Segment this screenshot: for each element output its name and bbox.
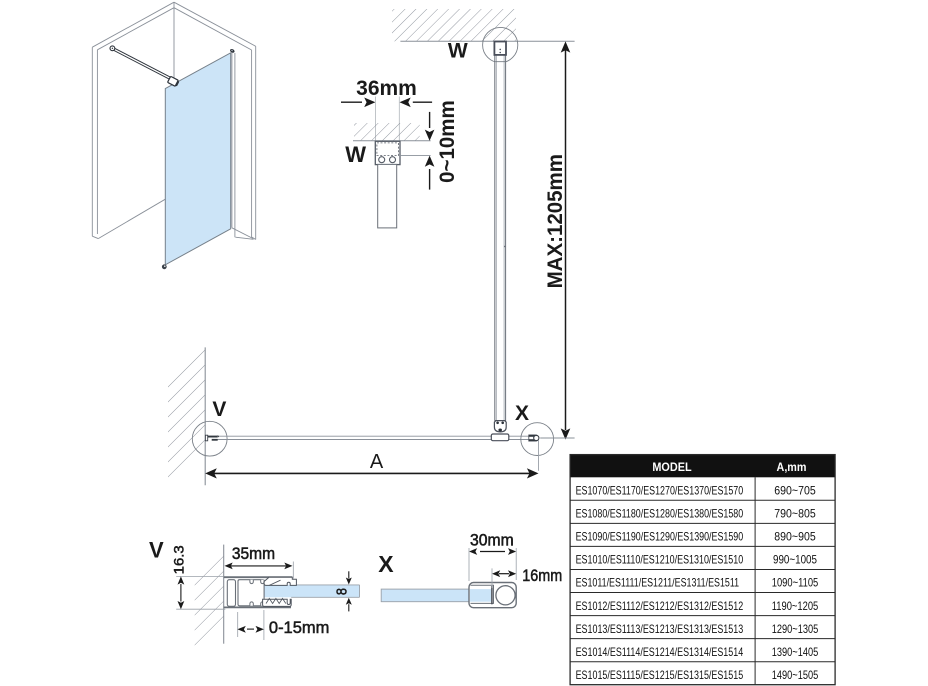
svg-text:36mm: 36mm <box>356 77 417 100</box>
svg-text:W: W <box>345 142 366 167</box>
svg-text:X: X <box>378 551 394 577</box>
svg-text:ES1080/ES1180/ES1280/ES1380/ES: ES1080/ES1180/ES1280/ES1380/ES1580 <box>576 507 744 521</box>
svg-text:ES1012/ES1112/ES1212/ES1312/ES: ES1012/ES1112/ES1212/ES1312/ES1512 <box>576 599 744 613</box>
svg-text:8: 8 <box>334 588 351 595</box>
svg-text:990~1005: 990~1005 <box>773 553 817 567</box>
svg-text:1390~1405: 1390~1405 <box>772 645 819 659</box>
svg-text:890~905: 890~905 <box>774 530 816 544</box>
svg-text:0~10mm: 0~10mm <box>436 100 459 183</box>
svg-text:690~705: 690~705 <box>774 484 816 498</box>
svg-text:A,mm: A,mm <box>777 460 807 474</box>
svg-text:V: V <box>149 538 164 563</box>
svg-text:W: W <box>448 40 468 63</box>
svg-text:ES1015/ES1115/ES1215/ES1315/ES: ES1015/ES1115/ES1215/ES1315/ES1515 <box>576 668 744 682</box>
svg-text:35mm: 35mm <box>232 545 275 563</box>
svg-text:ES1070/ES1170/ES1270/ES1370/ES: ES1070/ES1170/ES1270/ES1370/ES1570 <box>576 484 744 498</box>
svg-text:0-15mm: 0-15mm <box>269 618 330 637</box>
svg-text:1490~1505: 1490~1505 <box>772 668 819 682</box>
svg-text:V: V <box>212 398 226 421</box>
svg-text:ES1014/ES1114/ES1214/ES1314/ES: ES1014/ES1114/ES1214/ES1314/ES1514 <box>576 645 744 659</box>
svg-text:MAX:1205mm: MAX:1205mm <box>544 154 567 288</box>
svg-text:1090~1105: 1090~1105 <box>772 576 819 590</box>
svg-text:1190~1205: 1190~1205 <box>772 599 819 613</box>
svg-text:ES1010/ES1110/ES1210/ES1310/ES: ES1010/ES1110/ES1210/ES1310/ES1510 <box>576 553 744 567</box>
svg-text:X: X <box>515 402 529 425</box>
svg-text:16.3: 16.3 <box>170 545 186 574</box>
svg-text:A: A <box>370 451 384 473</box>
svg-text:1290~1305: 1290~1305 <box>772 622 819 636</box>
svg-text:ES1011/ES1111/ES1211/ES1311/ES: ES1011/ES1111/ES1211/ES1311/ES1511 <box>576 576 740 590</box>
svg-text:30mm: 30mm <box>470 532 514 550</box>
svg-text:ES1090/ES1190/ES1290/ES1390/ES: ES1090/ES1190/ES1290/ES1390/ES1590 <box>576 530 744 544</box>
svg-text:790~805: 790~805 <box>774 507 816 521</box>
svg-text:ES1013/ES1113/ES1213/ES1313/ES: ES1013/ES1113/ES1213/ES1313/ES1513 <box>576 622 744 636</box>
svg-text:MODEL: MODEL <box>652 460 691 474</box>
svg-text:16mm: 16mm <box>522 566 562 585</box>
